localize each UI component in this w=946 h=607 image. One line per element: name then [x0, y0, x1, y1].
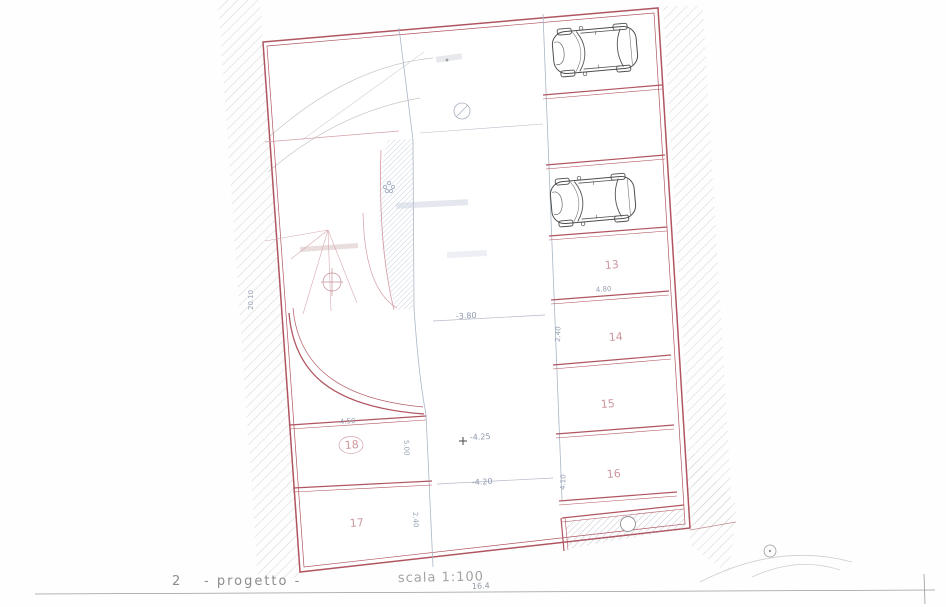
parking-space-18-label: 18 [344, 438, 359, 452]
parking-space-16-label: 16 [606, 467, 621, 481]
caption-index: 2 [172, 574, 180, 589]
floor-plan-drawing: 13 14 15 16 17 18 20.10 4.50 5.00 2.40 4… [0, 0, 946, 607]
parking-space-13-label: 13 [604, 258, 619, 272]
dim-notch: 2.40 [411, 512, 420, 528]
caption-scale: scala 1:100 [398, 569, 484, 585]
plan-interior [263, 8, 690, 572]
caption-title: - progetto - [204, 574, 301, 589]
stair-circle-icon [621, 517, 636, 532]
parking-space-15-label: 15 [600, 397, 615, 411]
scanned-floor-plan-page: 13 14 15 16 17 18 20.10 4.50 5.00 2.40 4… [0, 0, 946, 607]
parking-space-17-label: 17 [349, 516, 364, 530]
parking-space-14-label: 14 [608, 330, 623, 344]
dim-right-depth-b: 4.10 [559, 474, 568, 490]
dim-space13-width: 4.80 [596, 285, 612, 294]
level-lower: -4.20 [472, 477, 493, 487]
dim-left-height: 20.10 [247, 290, 255, 310]
level-upper: -3.80 [456, 311, 477, 321]
dim-space18-width: 4.50 [340, 417, 356, 426]
site-marker-dot [769, 550, 771, 552]
dim-right-depth-a: 2.40 [554, 326, 563, 342]
dim-space18-depth: 5.00 [402, 440, 411, 456]
level-mid: -4.25 [470, 432, 491, 442]
